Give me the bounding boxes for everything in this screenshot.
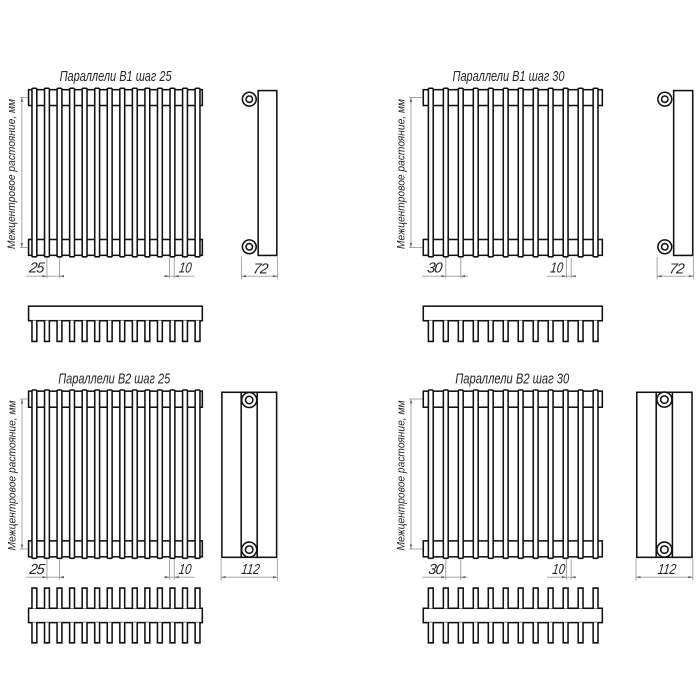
svg-text:Параллели В2 шаг 25: Параллели В2 шаг 25	[58, 372, 171, 388]
svg-text:Межцентровое растояние, мм: Межцентровое растояние, мм	[396, 400, 408, 550]
svg-text:112: 112	[657, 562, 677, 578]
svg-text:Параллели В1 шаг 30: Параллели В1 шаг 30	[453, 69, 565, 85]
svg-text:112: 112	[240, 562, 260, 578]
svg-text:Межцентровое растояние, мм: Межцентровое растояние, мм	[6, 400, 18, 550]
svg-text:72: 72	[668, 261, 685, 277]
svg-text:Параллели В2 шаг 30: Параллели В2 шаг 30	[455, 372, 569, 388]
svg-text:30: 30	[427, 562, 445, 578]
svg-text:72: 72	[252, 261, 269, 277]
svg-text:Межцентровое растояние, мм: Межцентровое растояние, мм	[6, 99, 18, 249]
svg-text:Параллели В1 шаг 25: Параллели В1 шаг 25	[60, 69, 173, 85]
svg-text:25: 25	[28, 562, 47, 578]
svg-text:Межцентровое растояние, мм: Межцентровое растояние, мм	[396, 99, 408, 249]
svg-text:30: 30	[426, 260, 444, 276]
svg-text:25: 25	[27, 260, 46, 276]
